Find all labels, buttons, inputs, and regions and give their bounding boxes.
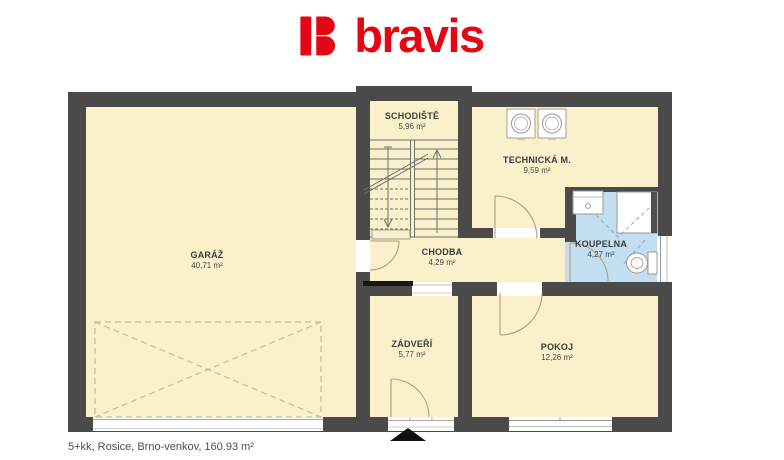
room-area: 12,26 m² [541, 353, 574, 362]
room-area: 9,59 m² [503, 166, 571, 175]
sink-icon [573, 191, 603, 214]
room-area: 40,71 m² [191, 261, 224, 270]
washing-machine-icon-2 [538, 109, 566, 140]
room-label-schodiste: SCHODIŠTĚ 5,96 m² [385, 111, 439, 131]
room-label-technicka: TECHNICKÁ M. 9,59 m² [503, 155, 571, 175]
room-label-koupelna: KOUPELNA 4,27 m² [575, 239, 627, 259]
window-pokoj [509, 417, 612, 431]
room-label-zadveri: ZÁDVEŘÍ 5,77 m² [392, 339, 433, 359]
room-area: 4,29 m² [422, 258, 463, 267]
room-name: GARÁŽ [191, 250, 224, 260]
room-floor-technicka-lower [472, 187, 565, 228]
room-name: ZÁDVEŘÍ [392, 339, 433, 349]
technicka-door-opening [493, 228, 540, 238]
pokoj-door-opening [497, 282, 542, 296]
room-name: CHODBA [422, 247, 463, 257]
toilet-icon [627, 252, 658, 274]
stairs-landing-step [372, 230, 410, 239]
room-area: 5,77 m² [392, 350, 433, 359]
room-label-pokoj: POKOJ 12,26 m² [541, 342, 574, 362]
window-koupelna [657, 236, 672, 282]
room-label-chodba: CHODBA 4,29 m² [422, 247, 463, 267]
room-name: POKOJ [541, 342, 574, 352]
floorplan-page: bravis [0, 0, 784, 460]
room-area: 5,96 m² [385, 122, 439, 131]
garage-door-opening [93, 417, 323, 431]
room-area: 4,27 m² [575, 250, 627, 259]
garage-chodba-opening [356, 240, 370, 272]
room-name: KOUPELNA [575, 239, 627, 249]
room-floors [86, 101, 658, 417]
room-label-garaz: GARÁŽ 40,71 m² [191, 250, 224, 270]
washing-machine-icon-1 [507, 109, 535, 140]
room-name: TECHNICKÁ M. [503, 155, 571, 165]
listing-caption: 5+kk, Rosice, Brno-venkov, 160.93 m² [68, 441, 254, 453]
room-name: SCHODIŠTĚ [385, 111, 439, 121]
entrance-opening [388, 417, 454, 431]
sliding-door [363, 281, 413, 286]
floorplan-drawing [0, 0, 784, 460]
chodba-zadveri-opening [412, 282, 452, 296]
